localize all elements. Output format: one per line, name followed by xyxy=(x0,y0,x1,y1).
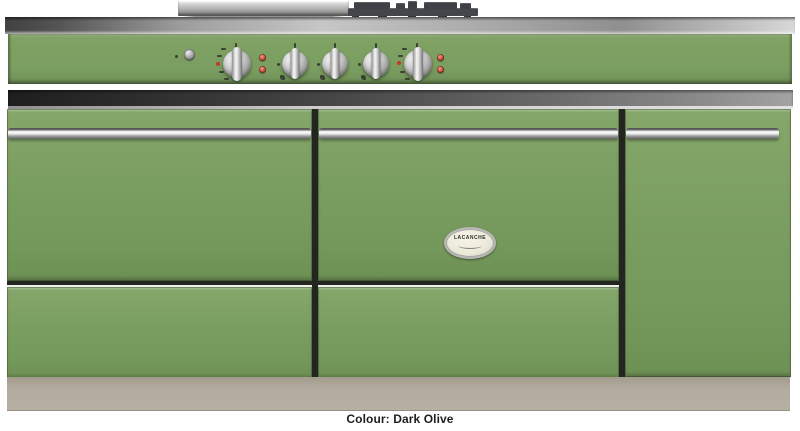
oven-indicator-light xyxy=(437,54,444,61)
left-oven-door xyxy=(7,109,312,281)
burner-knob-3 xyxy=(363,51,389,77)
scale-tick xyxy=(402,48,407,50)
spark-symbol-icon xyxy=(175,55,178,58)
position-dot xyxy=(277,63,280,66)
flame-icon xyxy=(280,75,285,80)
off-position-dot xyxy=(216,62,220,66)
colour-caption: Colour: Dark Olive xyxy=(0,412,800,426)
off-position-dot xyxy=(397,61,401,65)
middle-drawer xyxy=(318,285,619,379)
oven-indicator-light xyxy=(437,66,444,73)
left-drawer xyxy=(7,285,312,379)
grate-base xyxy=(348,8,478,16)
oven-indicator-light xyxy=(259,66,266,73)
scale-tick xyxy=(217,55,222,57)
scale-tick xyxy=(405,78,410,80)
control-panel xyxy=(8,34,792,84)
position-dot xyxy=(317,63,320,66)
right-door xyxy=(625,109,791,377)
scale-tick xyxy=(221,48,226,50)
brand-badge-script-flourish xyxy=(458,242,482,249)
worktop-front-trim xyxy=(5,17,795,34)
scale-tick xyxy=(224,78,229,80)
left-oven-knob xyxy=(223,50,251,78)
brand-badge-text: LACANCHE xyxy=(446,236,494,241)
ignition-button xyxy=(184,49,195,60)
position-dot xyxy=(358,63,361,66)
scale-tick xyxy=(219,71,224,73)
cabinet-body: LACANCHE xyxy=(7,109,791,377)
burner-knob-1 xyxy=(282,51,308,77)
middle-oven-door: LACANCHE xyxy=(318,109,619,281)
grate-tab xyxy=(408,1,417,9)
worktop-underside-trim xyxy=(8,90,793,106)
left-door-handle xyxy=(8,128,311,139)
brand-badge: LACANCHE xyxy=(444,227,496,259)
grate-tab xyxy=(354,2,390,9)
scale-tick xyxy=(400,71,405,73)
burner-knob-2 xyxy=(322,51,348,77)
grate-tab xyxy=(460,3,471,9)
flame-icon xyxy=(361,75,366,80)
oven-indicator-light xyxy=(259,54,266,61)
grate-tab xyxy=(424,2,457,9)
grate-tab xyxy=(396,3,405,9)
right-door-handle xyxy=(626,128,779,139)
flame-icon xyxy=(320,75,325,80)
scale-tick xyxy=(398,55,403,57)
middle-door-handle xyxy=(319,128,618,139)
plinth-kickboard xyxy=(7,377,790,411)
right-oven-knob xyxy=(404,50,432,78)
griddle-plate xyxy=(178,1,349,16)
